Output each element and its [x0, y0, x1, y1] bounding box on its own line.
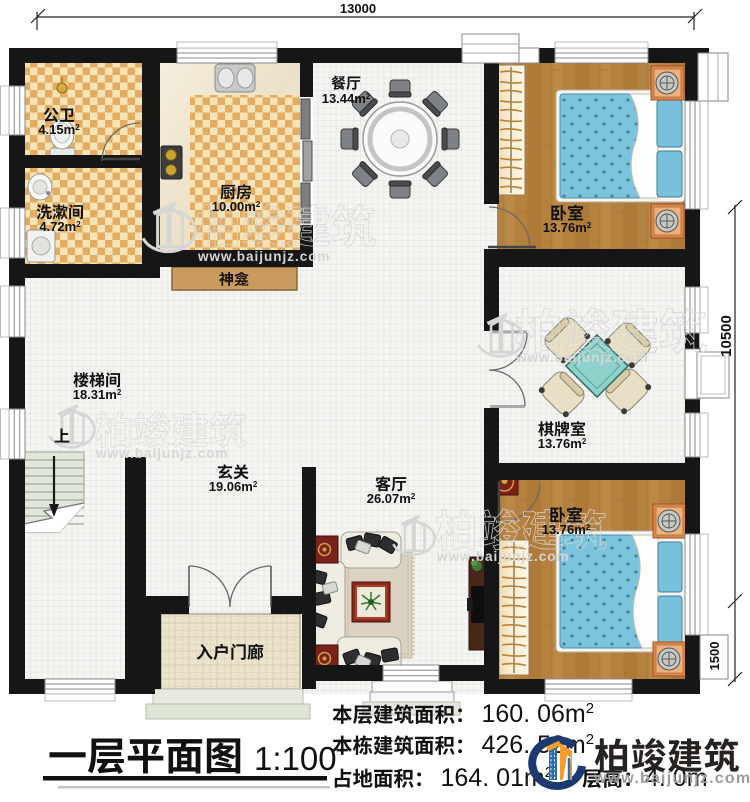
- svg-text:www.baijunjz.com: www.baijunjz.com: [515, 350, 649, 365]
- svg-text:18.31m2: 18.31m2: [73, 387, 122, 402]
- svg-text:4.15m2: 4.15m2: [38, 122, 80, 137]
- svg-text:13.76m2: 13.76m2: [543, 220, 592, 235]
- svg-text:www.baijunjz.com: www.baijunjz.com: [197, 249, 331, 264]
- svg-text:19.06m2: 19.06m2: [209, 479, 258, 494]
- svg-text:10500: 10500: [718, 315, 735, 357]
- svg-text:1500: 1500: [707, 642, 722, 671]
- svg-text:26.07m2: 26.07m2: [367, 491, 416, 506]
- svg-text:13.44m2: 13.44m2: [322, 91, 371, 106]
- svg-text:13.76m2: 13.76m2: [542, 522, 591, 537]
- svg-text:10.00m2: 10.00m2: [212, 199, 261, 214]
- svg-text:1:100: 1:100: [254, 740, 337, 777]
- svg-text:www.baijunjz.com: www.baijunjz.com: [95, 446, 229, 461]
- svg-text:4.72m2: 4.72m2: [39, 219, 81, 234]
- svg-text:160. 06m2: 160. 06m2: [482, 700, 595, 728]
- svg-text:www.baijunjz.com: www.baijunjz.com: [593, 770, 750, 787]
- svg-text:13.76m2: 13.76m2: [538, 436, 587, 451]
- svg-text:13000: 13000: [340, 1, 376, 16]
- svg-text:www.baijunjz.com: www.baijunjz.com: [436, 549, 570, 564]
